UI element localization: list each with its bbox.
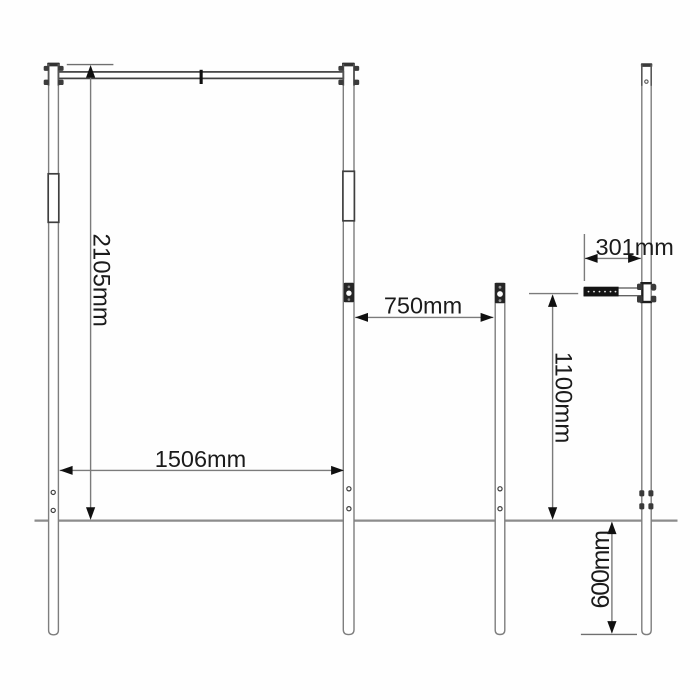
svg-text:301mm: 301mm [596, 234, 674, 260]
svg-text:750mm: 750mm [384, 293, 462, 319]
svg-text:1506mm: 1506mm [155, 446, 246, 472]
svg-text:600mm: 600mm [587, 531, 615, 609]
svg-text:1100mm: 1100mm [549, 352, 576, 444]
svg-text:2105mm: 2105mm [87, 234, 114, 327]
